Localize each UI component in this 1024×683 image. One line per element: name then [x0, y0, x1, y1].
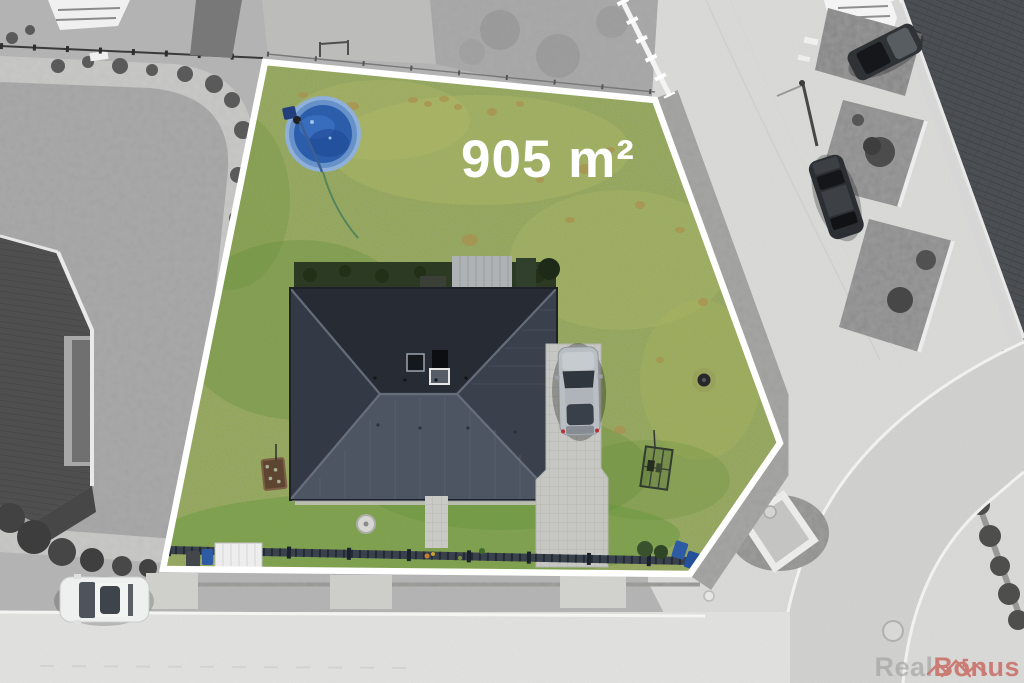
tree [538, 258, 560, 280]
manhole-cover-small [704, 591, 714, 601]
fire-pit [692, 368, 716, 392]
white-shed [215, 543, 262, 569]
realbonus-roofs-icon [926, 654, 990, 678]
driveway-apron [146, 573, 198, 609]
bush [654, 545, 668, 559]
parked-car-white [54, 574, 154, 626]
manhole-cover [883, 621, 903, 641]
watermark-brand-first: Real [874, 652, 933, 682]
driveway-apron [560, 575, 626, 608]
bush [637, 541, 653, 557]
aerial-property-photo: 905 m² RealBonus [0, 0, 1024, 683]
gray-bin [186, 551, 200, 567]
white-building-top-left [48, 0, 130, 30]
driveway-apron [330, 575, 392, 609]
blue-bin [202, 549, 213, 565]
plot-area-label: 905 m² [461, 133, 635, 186]
watermark: RealBonus [874, 654, 1020, 681]
garden-frame [640, 446, 672, 489]
skylight [407, 354, 424, 371]
raised-garden-bed [261, 458, 286, 490]
chimney-cap [430, 369, 449, 384]
main-house-roof [290, 288, 557, 501]
aerial-photo-scene [0, 0, 1024, 683]
